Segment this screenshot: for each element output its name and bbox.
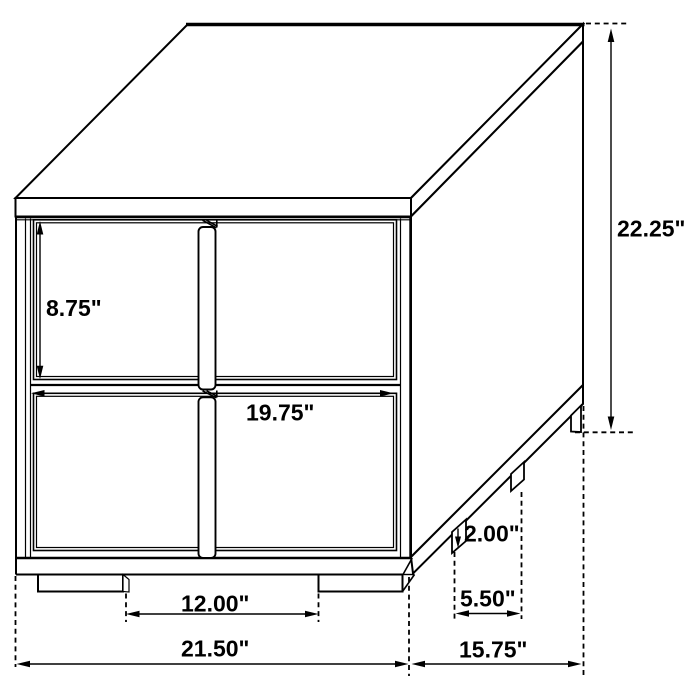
front-left-leg-side bbox=[123, 575, 129, 593]
top-slab-front bbox=[16, 198, 412, 217]
dimension-labels: 8.75" 19.75" 22.25" 2.00" 5.50" 12.00" 2… bbox=[46, 216, 685, 663]
label-drawer-width: 19.75" bbox=[246, 400, 314, 426]
arrowhead bbox=[17, 661, 31, 668]
arrowhead bbox=[37, 366, 44, 380]
drawer-top-handle bbox=[199, 220, 218, 390]
base-corner-slant bbox=[403, 558, 412, 575]
label-leg-height: 2.00" bbox=[464, 521, 520, 547]
dimension-diagram-canvas: 8.75" 19.75" 22.25" 2.00" 5.50" 12.00" 2… bbox=[0, 0, 700, 700]
label-drawer-face-height: 8.75" bbox=[46, 295, 102, 321]
arrowhead bbox=[126, 611, 140, 618]
arrowhead bbox=[608, 417, 615, 431]
handle-bottom-bar bbox=[199, 397, 216, 558]
label-side-leg-spacing: 5.50" bbox=[460, 586, 516, 612]
front-left-leg bbox=[38, 575, 123, 592]
drawer-bottom-handle bbox=[199, 391, 218, 559]
front-right-leg bbox=[319, 575, 403, 592]
label-overall-depth: 15.75" bbox=[459, 637, 527, 663]
label-overall-width: 21.50" bbox=[181, 636, 249, 662]
label-overall-height: 22.25" bbox=[617, 216, 685, 242]
label-front-leg-spacing: 12.00" bbox=[181, 591, 249, 617]
handle-top-bar bbox=[199, 227, 216, 390]
arrowhead bbox=[568, 661, 582, 668]
arrowhead bbox=[305, 611, 319, 618]
arrowhead bbox=[395, 661, 409, 668]
arrowhead bbox=[608, 29, 615, 43]
arrowhead bbox=[380, 390, 394, 397]
nightstand-dimension-diagram: 8.75" 19.75" 22.25" 2.00" 5.50" 12.00" 2… bbox=[0, 0, 700, 700]
arrowhead bbox=[412, 661, 426, 668]
